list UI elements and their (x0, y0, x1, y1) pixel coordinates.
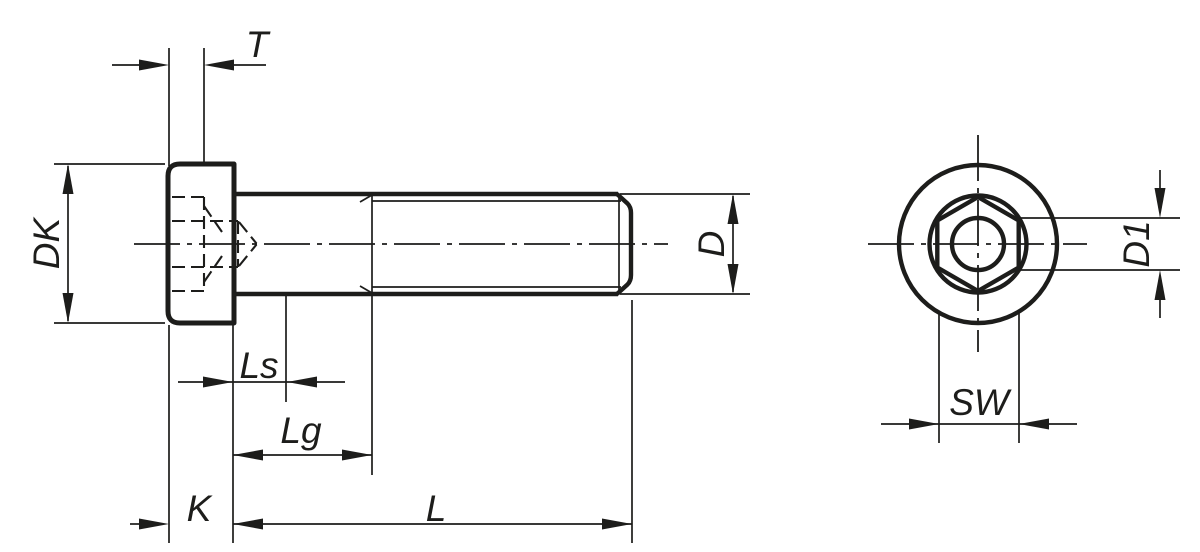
arrowhead (63, 293, 74, 323)
dimension-sw: SW (881, 312, 1077, 443)
arrowhead (139, 60, 169, 71)
dim-label-ls: Ls (239, 345, 278, 386)
dim-label-k: K (187, 488, 214, 529)
arrowhead (139, 519, 169, 530)
dimension-ls: Ls (178, 296, 345, 402)
technical-drawing-canvas: T DK D Ls Lg K (0, 0, 1200, 552)
arrowhead (1155, 188, 1166, 218)
dimension-d: D (620, 194, 750, 294)
arrowhead (342, 450, 372, 461)
dim-label-d: D (691, 231, 732, 258)
dimension-k: K (130, 325, 233, 543)
arrowhead (728, 194, 739, 224)
dim-label-lg: Lg (280, 410, 322, 451)
arrowhead (287, 377, 317, 388)
arrowhead (909, 419, 939, 430)
dim-label-sw: SW (949, 382, 1012, 423)
arrowhead (233, 519, 263, 530)
arrowhead (602, 519, 632, 530)
arrowhead (204, 60, 234, 71)
pilot-cone-top (239, 222, 257, 244)
arrowhead (203, 377, 233, 388)
pilot-cone-bottom (239, 245, 257, 267)
arrowhead (728, 264, 739, 294)
socket-cone-bottom (204, 256, 222, 282)
arrowhead (1155, 270, 1166, 300)
dimension-t: T (112, 24, 271, 166)
dim-label-dk: DK (26, 215, 67, 269)
dim-label-l: L (426, 488, 447, 529)
arrowhead (63, 164, 74, 194)
centerlines (134, 135, 1087, 352)
arrowhead (1019, 419, 1049, 430)
technical-drawing-page: T DK D Ls Lg K (0, 0, 1200, 552)
dim-label-t: T (246, 24, 271, 65)
dim-label-d1: D1 (1116, 220, 1157, 267)
socket-cone-top (204, 206, 222, 232)
arrowhead (233, 450, 263, 461)
